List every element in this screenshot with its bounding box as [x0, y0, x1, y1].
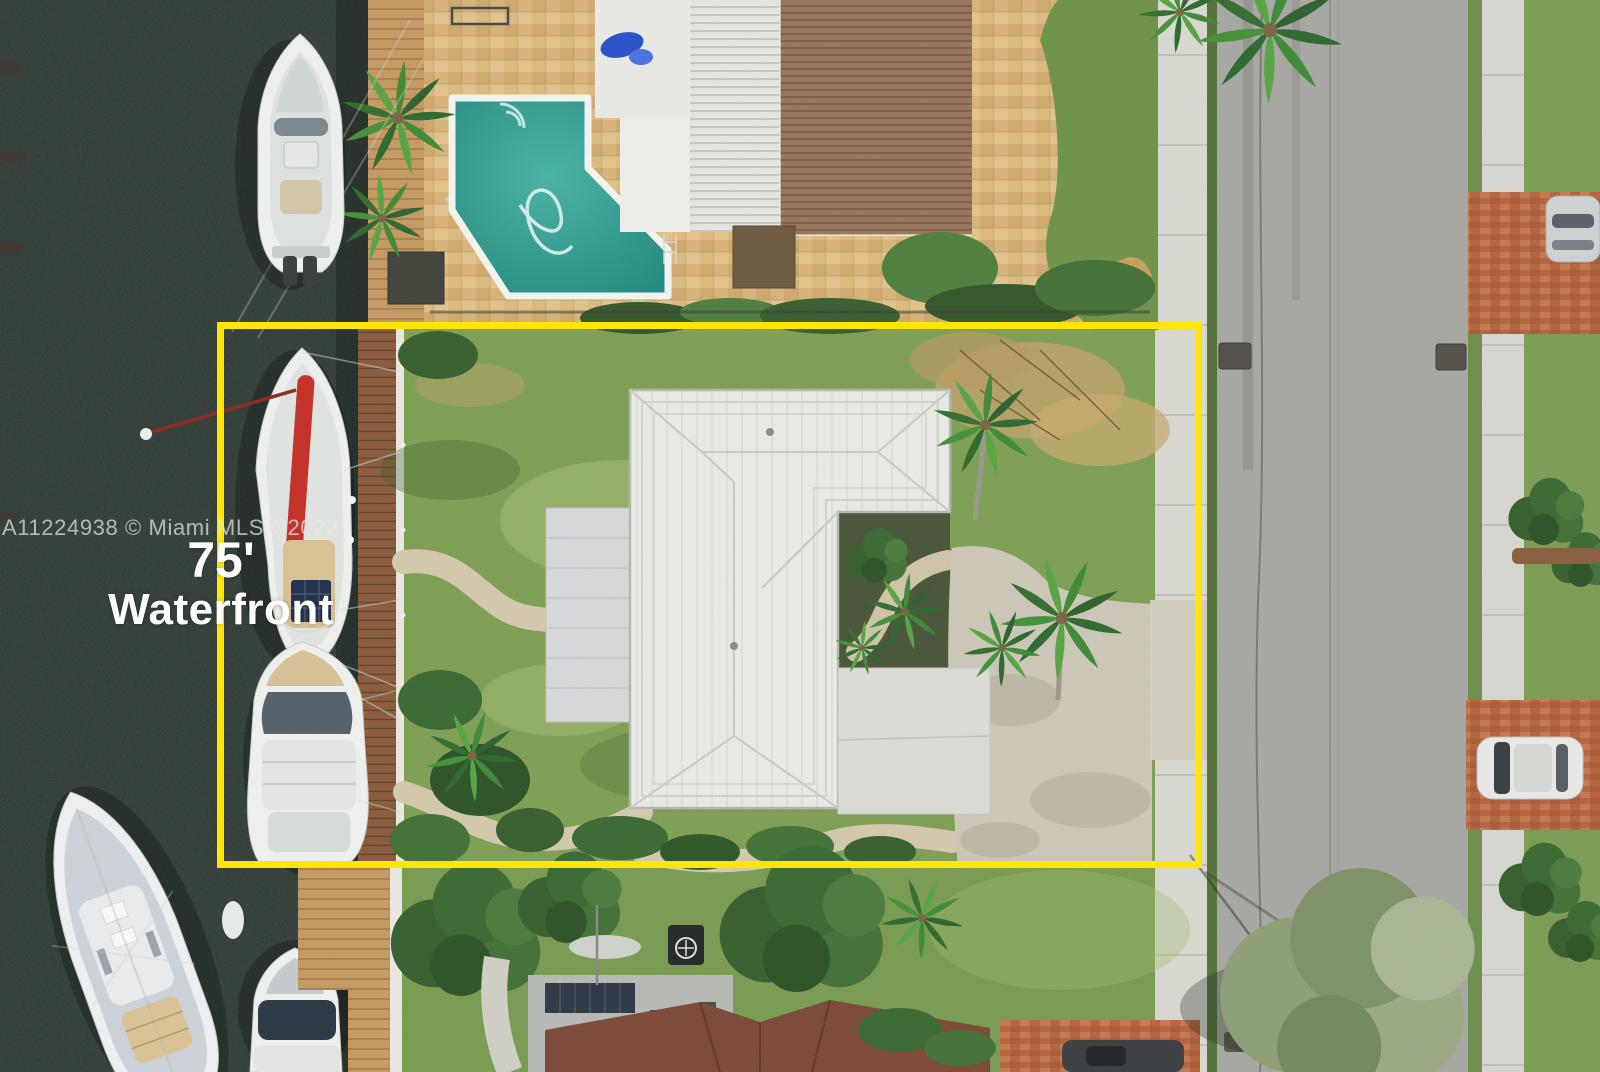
frontage-value: 75' — [95, 534, 347, 587]
waterfront-label: 75' Waterfront — [95, 534, 347, 633]
aerial-photo: A11224938 © Miami MLS® 2022 75' Waterfro… — [0, 0, 1600, 1072]
property-boundary-box — [217, 322, 1202, 868]
frontage-text: Waterfront — [95, 587, 347, 633]
